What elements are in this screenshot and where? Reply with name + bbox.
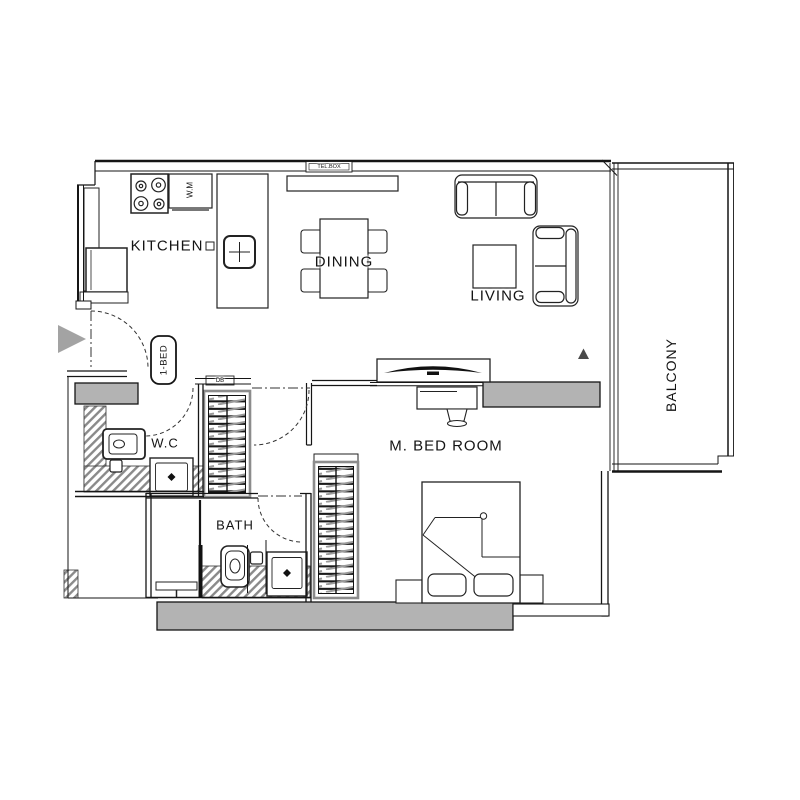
wc-door-arc	[145, 388, 193, 436]
bath-wall-left	[146, 493, 151, 598]
telbox-label: TEL.BOX	[317, 164, 340, 170]
bedroom-wall-right	[602, 471, 609, 616]
tv-wall	[370, 383, 483, 386]
pillow-icon	[474, 574, 513, 596]
wc-label: W.C	[151, 436, 179, 451]
entry-door-arc	[91, 311, 148, 368]
floor-plan-drawing	[0, 0, 800, 800]
bath-fixture-box	[251, 552, 263, 564]
wardrobe-2	[314, 454, 358, 598]
nightstand-icon	[396, 580, 422, 603]
wall-block-bedroom-top	[483, 382, 600, 407]
wardrobe-1	[204, 376, 250, 497]
balcony-wall-bottom-inner	[612, 456, 734, 464]
window-wall-glass	[610, 163, 618, 471]
entry-arrow-icon	[58, 325, 86, 353]
washbasin-icon	[103, 429, 145, 459]
tv-stand	[427, 372, 439, 376]
wall-block-hall	[75, 383, 138, 404]
north-marker-icon	[578, 349, 589, 360]
bed-corner-mark	[480, 513, 486, 519]
stool-icon	[447, 409, 467, 427]
shower-tray-icon	[267, 552, 307, 596]
kitchen-label: KITCHEN	[131, 238, 204, 255]
nightstand-icon	[520, 575, 543, 603]
bed-icon	[422, 482, 520, 603]
fridge-icon	[86, 248, 127, 292]
floor-plan: KITCHEN DINING LIVING M. BED ROOM W.C BA…	[0, 0, 800, 800]
coffee-table-icon	[473, 245, 516, 288]
sideboard-icon	[287, 176, 398, 191]
bedroom-door-arc	[254, 390, 309, 445]
living-furniture	[455, 175, 589, 359]
hall-wall	[67, 371, 127, 377]
bath-label: BATH	[216, 518, 254, 533]
bath-wall-mid-solid	[199, 545, 203, 598]
walls	[67, 160, 734, 616]
armchair-icon	[533, 226, 578, 306]
wall-top-left-step	[77, 161, 95, 185]
balcony-label: BALCONY	[663, 338, 679, 412]
db-label: DB	[216, 378, 224, 384]
unit-tag-label: 1-BED	[158, 345, 169, 375]
shower-tray-icon	[150, 458, 193, 496]
door-jamb	[76, 301, 91, 309]
bath-door-arc	[258, 498, 302, 542]
chair-icon	[301, 269, 322, 292]
bathtub-faucet-icon	[156, 582, 197, 597]
dining-furniture	[287, 176, 398, 298]
wc-fixture-box	[110, 460, 122, 472]
bedroom-wall-bottom	[513, 604, 609, 616]
switch-box	[206, 242, 214, 250]
toilet-icon	[221, 546, 249, 587]
pillow-icon	[428, 574, 466, 596]
wall-block-bottom	[157, 602, 513, 630]
chair-icon	[366, 269, 387, 292]
bedroom-wall-top	[312, 381, 377, 386]
bedroom-label: M. BED ROOM	[389, 438, 503, 455]
washing-machine-label: W.M	[186, 182, 195, 198]
chair-icon	[366, 230, 387, 253]
sofa-icon	[455, 175, 537, 218]
dining-label: DINING	[315, 254, 374, 271]
chair-icon	[301, 230, 322, 253]
living-label: LIVING	[470, 288, 525, 305]
tv-unit	[377, 359, 490, 382]
corner-pier-hatch	[64, 570, 78, 598]
dresser-icon	[417, 387, 477, 409]
